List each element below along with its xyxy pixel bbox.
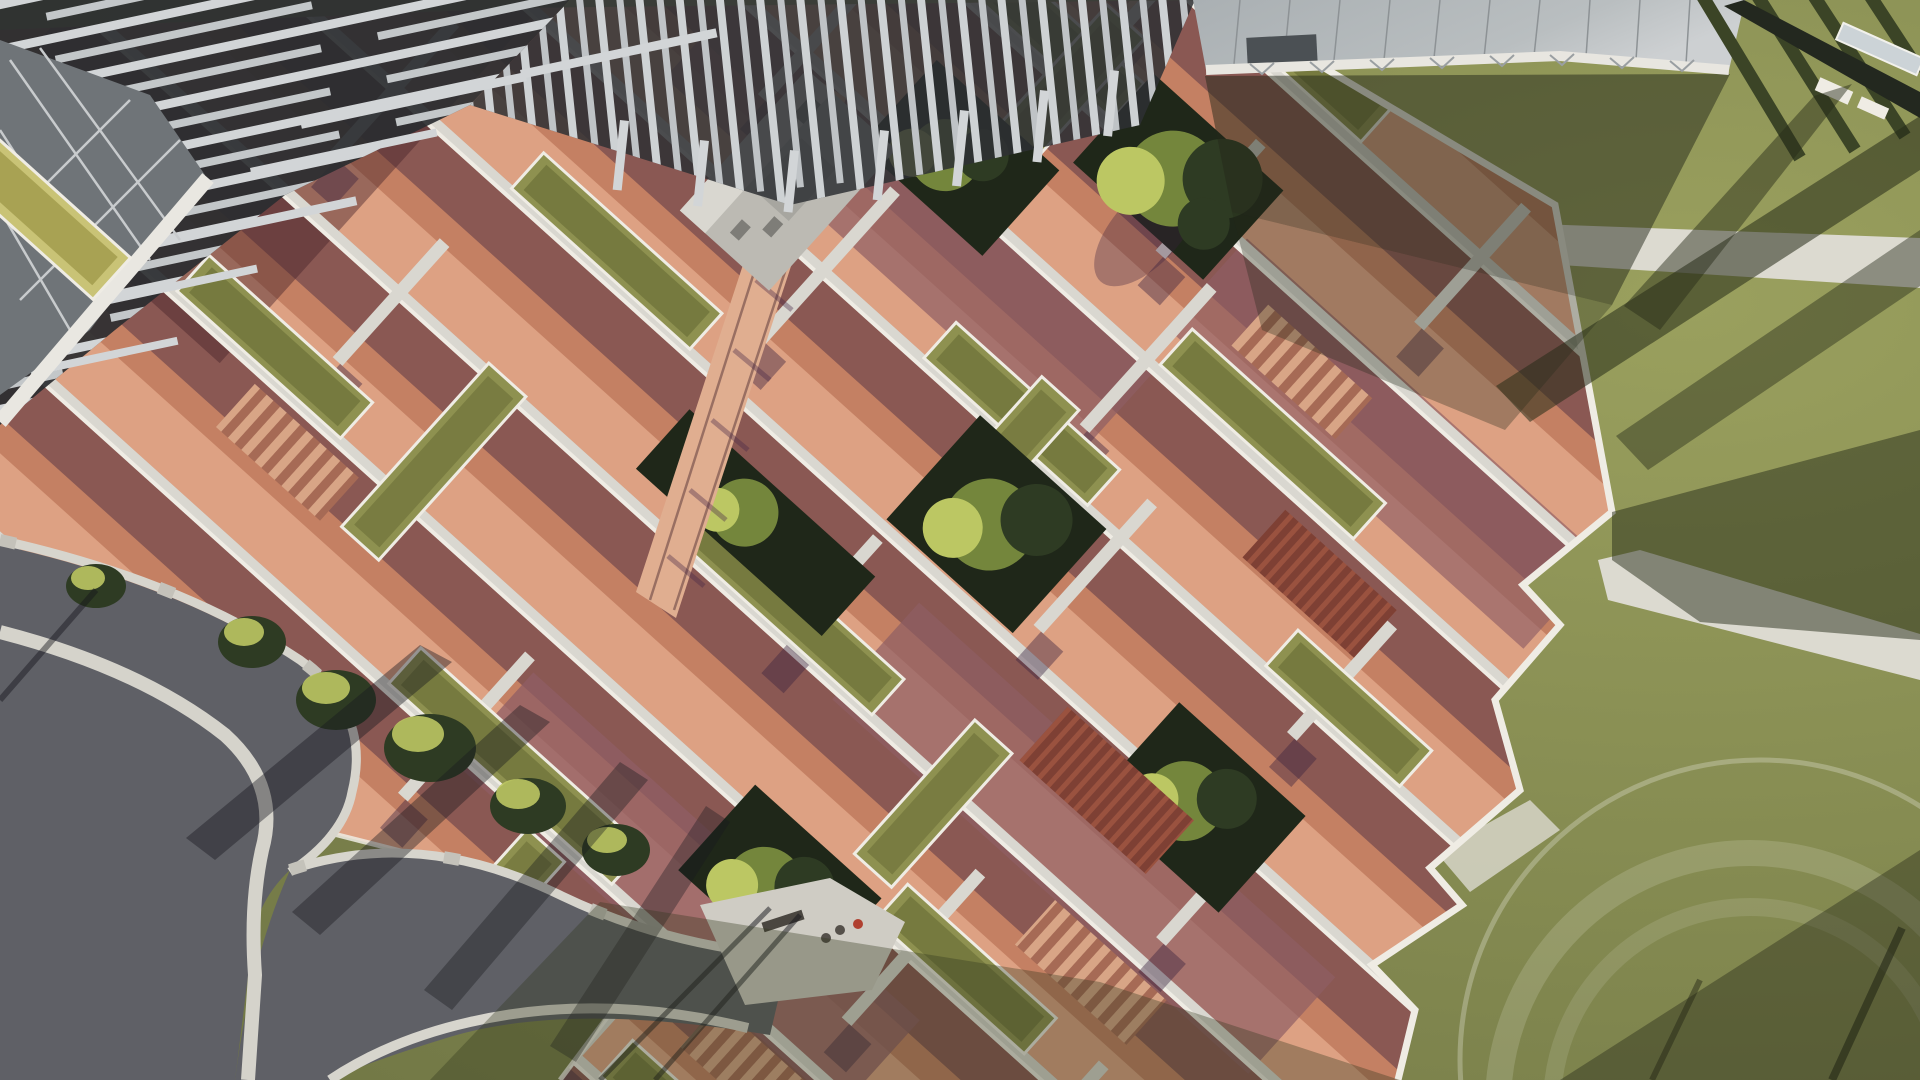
bin — [835, 925, 845, 935]
bush — [490, 778, 566, 834]
bush — [66, 564, 126, 608]
kiosk — [853, 919, 863, 929]
bush — [218, 616, 286, 668]
aerial-photo-canvas — [0, 0, 1920, 1080]
aerial-photo — [0, 0, 1920, 1080]
